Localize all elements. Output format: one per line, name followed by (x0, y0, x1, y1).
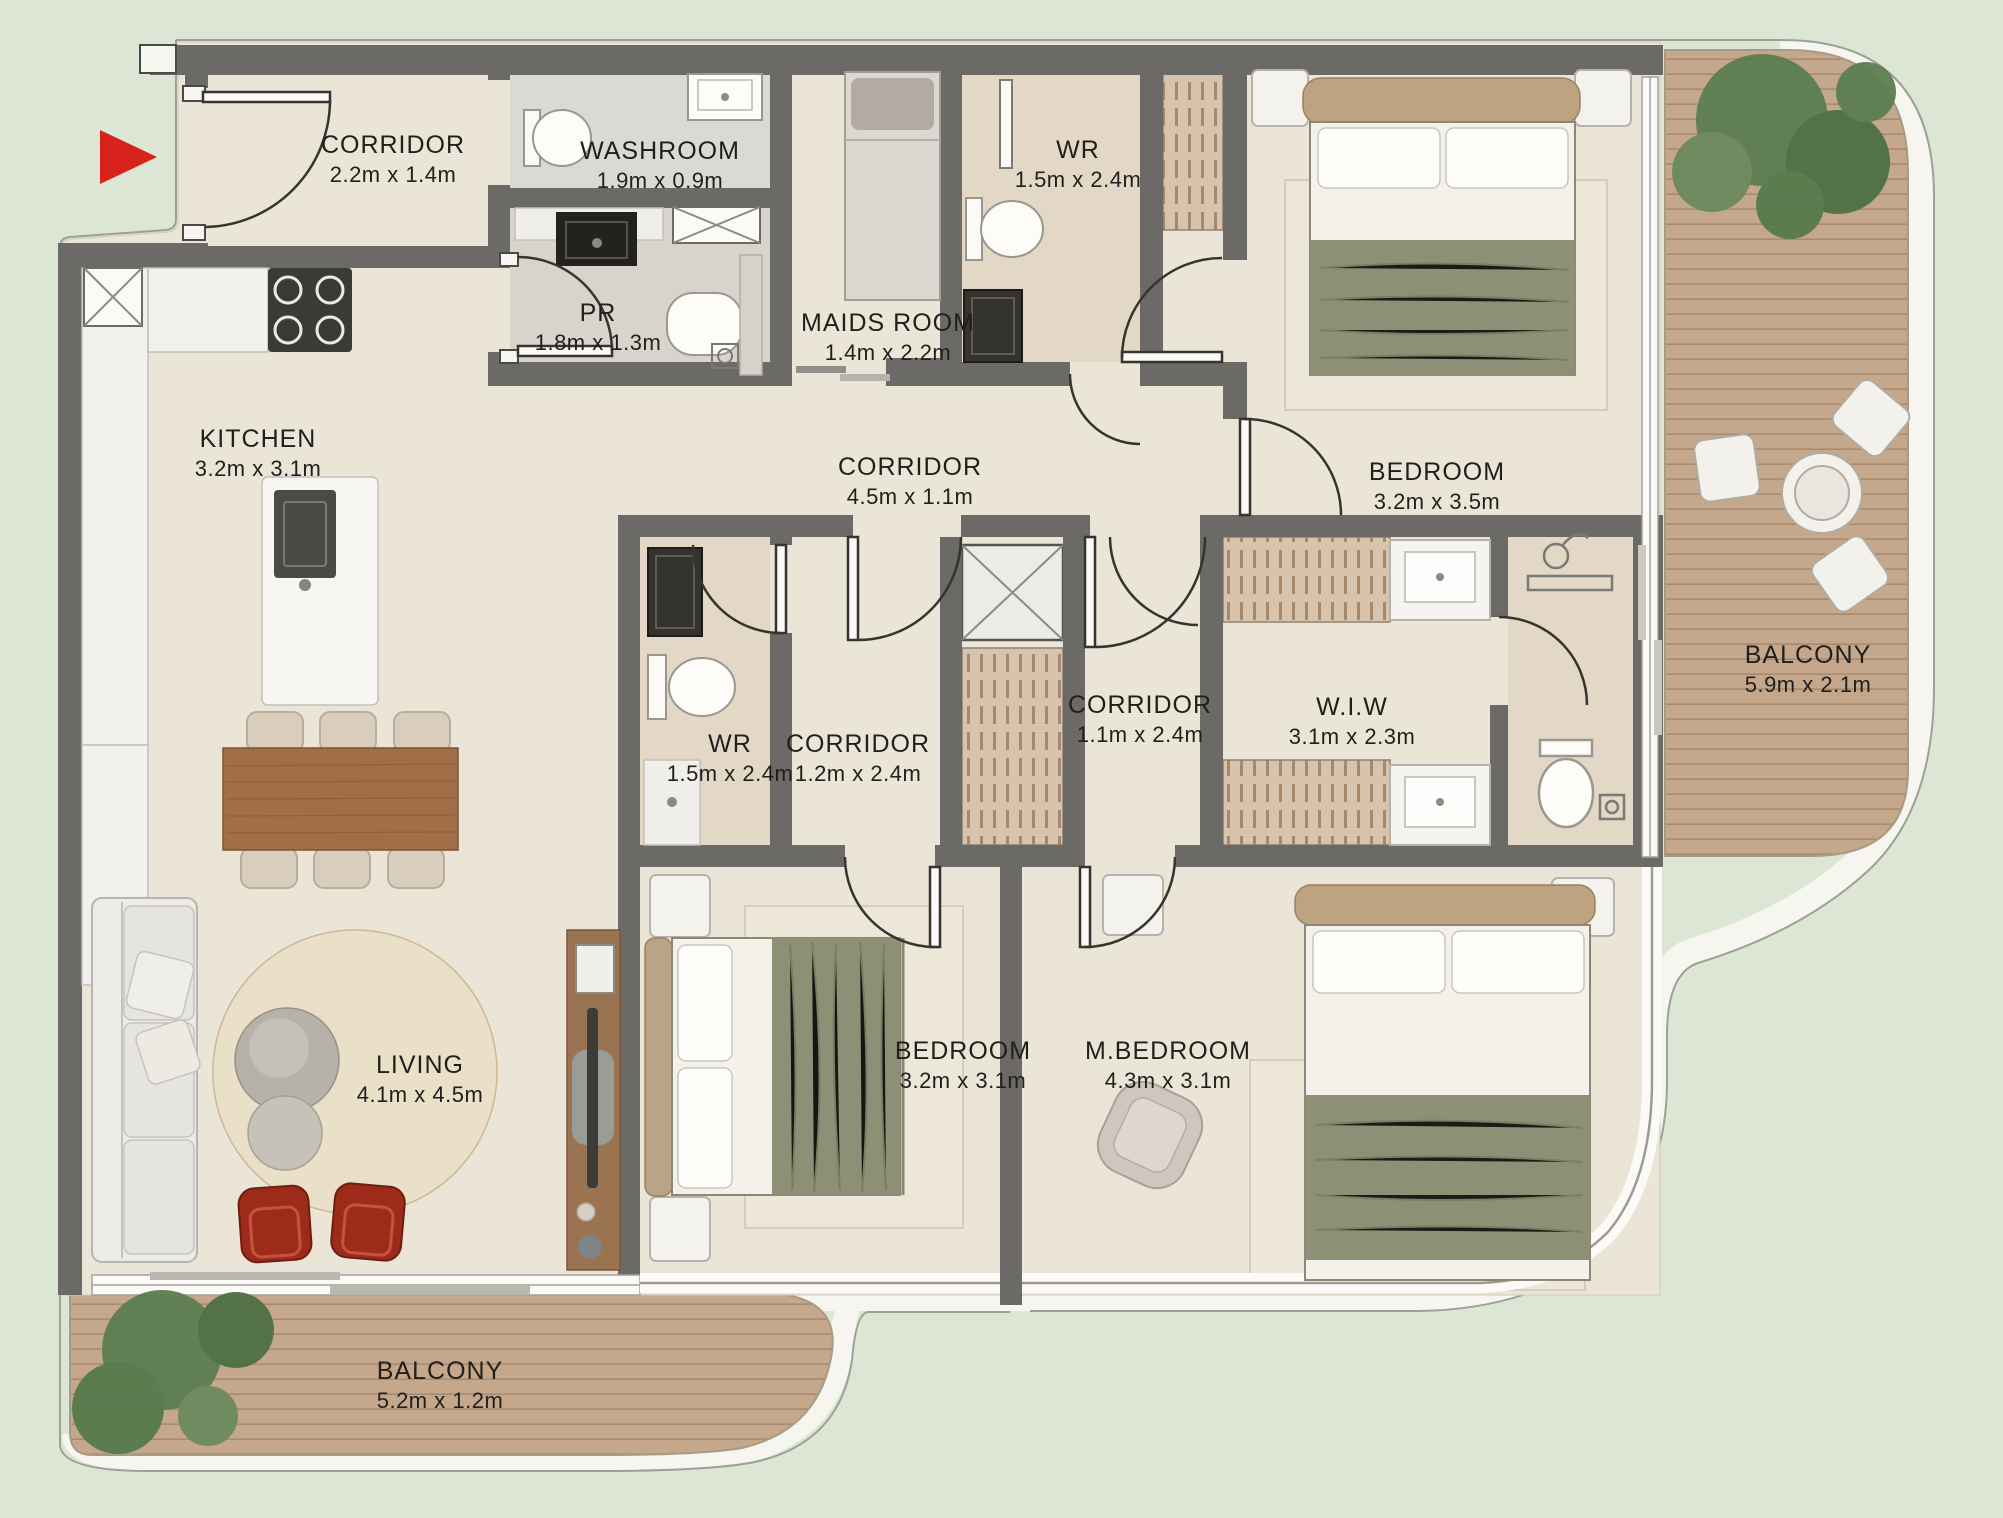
bedroom-bottom-door[interactable] (930, 867, 940, 947)
entry-door[interactable] (203, 92, 330, 102)
hall-closet (962, 648, 1063, 845)
corridor-11-door[interactable] (1085, 537, 1095, 647)
nightstand (650, 875, 710, 937)
room-label-balcony-right: BALCONY5.9m x 2.1m (1745, 640, 1872, 699)
room-label-corridor-12: CORRIDOR1.2m x 2.4m (786, 729, 930, 788)
room-label-kitchen: KITCHEN3.2m x 3.1m (195, 424, 322, 483)
room-label-living: LIVING4.1m x 4.5m (357, 1050, 484, 1109)
wiw-wardrobe-bottom (1223, 760, 1390, 845)
room-label-master-bedroom: M.BEDROOM4.3m x 3.1m (1085, 1036, 1251, 1095)
master-bedroom-door[interactable] (1080, 867, 1090, 947)
room-label-corridor-11: CORRIDOR1.1m x 2.4m (1068, 690, 1212, 749)
room-label-bedroom-top: BEDROOM3.2m x 3.5m (1369, 457, 1505, 516)
floor-plan: CORRIDOR2.2m x 1.4m WASHROOM1.9m x 0.9m … (0, 0, 2003, 1518)
wr-mid-door[interactable] (776, 545, 786, 633)
side-table (248, 1096, 322, 1170)
room-label-balcony-bottom: BALCONY5.2m x 1.2m (377, 1356, 504, 1415)
bed-headboard (645, 938, 672, 1196)
corridor-door[interactable] (1122, 352, 1222, 362)
nightstand (1252, 70, 1308, 126)
room-label-corridor-main: CORRIDOR4.5m x 1.1m (838, 452, 982, 511)
wiw-wardrobe-top (1223, 537, 1390, 622)
nightstand (650, 1197, 710, 1261)
nightstand (1575, 70, 1631, 126)
balcony-right-slider[interactable] (1638, 545, 1646, 640)
room-label-powder-room: PR1.8m x 1.3m (535, 298, 662, 357)
nightstand (1103, 875, 1163, 935)
maids-bed (845, 72, 940, 300)
stove-icon (268, 268, 352, 352)
tv-console (567, 930, 620, 1270)
living-balcony-slider[interactable] (330, 1286, 530, 1294)
living-balcony-slider[interactable] (150, 1272, 340, 1280)
tv-icon (587, 1008, 598, 1188)
bed-headboard (1295, 885, 1595, 925)
floor-plan-drawing (0, 0, 2003, 1518)
toilet-icon (669, 658, 735, 716)
picture-frame-icon (576, 945, 614, 993)
corridor-12-door[interactable] (848, 537, 858, 640)
toilet-icon (981, 201, 1043, 257)
bedroom-top-wardrobe (1163, 70, 1223, 230)
room-label-wr-top: WR1.5m x 2.4m (1015, 135, 1142, 194)
bed-headboard (1303, 78, 1580, 124)
kitchen-island (262, 477, 378, 705)
balcony-right-slider[interactable] (1654, 640, 1662, 735)
room-label-wiw: W.I.W3.1m x 2.3m (1289, 692, 1416, 751)
room-label-bedroom-bottom: BEDROOM3.2m x 3.1m (895, 1036, 1031, 1095)
room-label-entry-corridor: CORRIDOR2.2m x 1.4m (321, 130, 465, 189)
toilet-icon (667, 293, 742, 355)
entry-arrow-icon (100, 130, 157, 184)
room-label-wr-mid: WR1.5m x 2.4m (667, 729, 794, 788)
bedroom-top-door[interactable] (1240, 419, 1250, 515)
kitchen-counter (148, 268, 268, 352)
room-label-washroom: WASHROOM1.9m x 0.9m (580, 136, 740, 195)
room-label-maids-room: MAIDS ROOM1.4m x 2.2m (801, 308, 975, 367)
dining-set (223, 712, 458, 888)
